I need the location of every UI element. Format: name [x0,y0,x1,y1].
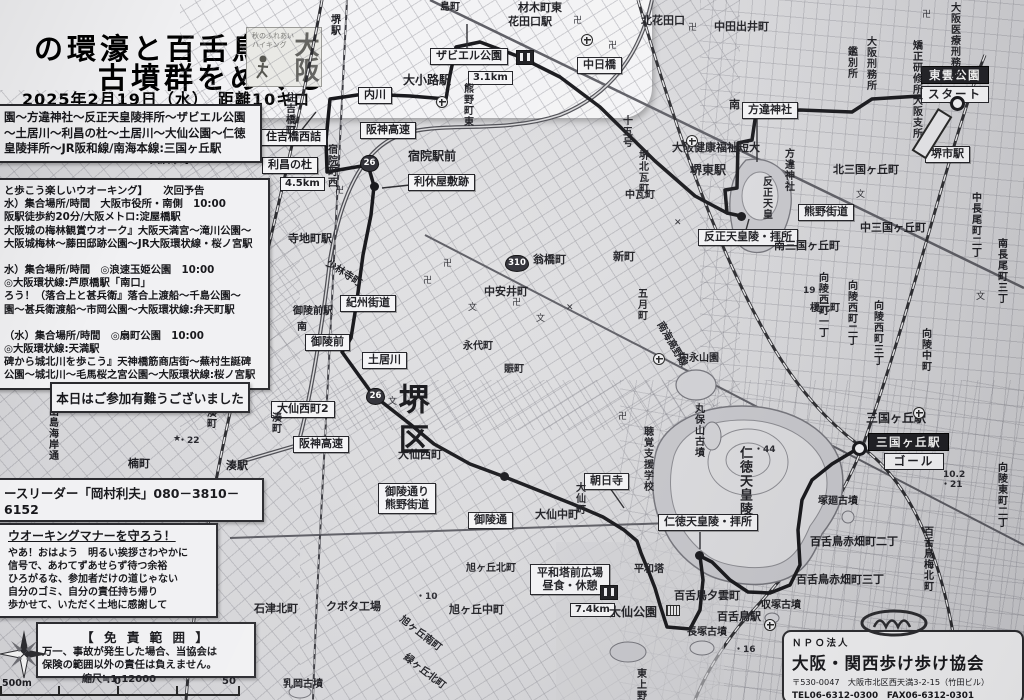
map-label: 住吉橋西詰 [260,129,327,146]
hiker-icon [253,54,275,80]
map-label: 東上野芝町 [634,668,646,700]
scale-bar: 縮尺≒1:12000 500m 0 50 [0,668,246,700]
scale-tick [176,686,178,695]
map-label: 仁徳天皇陵 [736,446,751,516]
map-label: 中瓦町 [625,190,655,202]
map-symbol: 卍 [922,10,931,20]
course-description-box: 園～方違神社～反正天皇陵拝所～ザビエル公園 ～土居川～利昌の杜～土居川～大仙公園… [0,104,262,163]
map-label: 土居川 [362,352,407,369]
map-label: 十五号 [620,115,632,148]
walking-manner-box: ウオーキングマナーを守ろう！ やあ！おはよう 明るい挨拶さわやかに 信号で、あわ… [0,523,218,618]
map-label: 長塚古墳 [687,627,727,639]
restroom-icon [600,585,618,600]
map-label: 石津北町 [254,603,298,616]
map-label: 中長尾町二丁 [969,192,981,258]
map-label: 方違神社 [742,102,798,119]
next-walk-announcement-box: と歩こう楽しいウオーキング】 次回予告 水）集合場所/時間 大阪市役所・南側 1… [0,178,270,390]
map-label: 紀州街道 [340,295,396,312]
manner-lines: やあ！おはよう 明るい挨拶さわやかに 信号で、あわてずあせらず待つ余裕 ひろがる… [8,547,212,612]
map-label: 乳岡古墳 [283,679,323,691]
map-symbol: 卍 [618,412,627,422]
museum-icon [666,605,680,616]
map-label: 榎元町 [810,303,840,315]
map-symbol: 卍 [443,259,452,269]
chinooka-tomb [289,686,311,698]
map-label: 中田出井町 [714,21,769,34]
map-label: 大仙公園 [609,606,657,620]
map-symbol: ✕ [674,218,682,228]
map-label: 大仙町 [573,482,585,515]
map-label: スタート [921,86,989,103]
spot-height: ・16 [734,645,756,655]
map-label: 阪神高速 [360,122,416,139]
map-label: 大仙西町 [398,449,442,462]
map-label: 南海高野線 [654,320,689,369]
map-label: 北三国ヶ丘町 [833,164,899,177]
map-symbol: 文 [536,314,545,324]
manner-title: ウオーキングマナーを守ろう！ [8,529,212,545]
thanks-box: 本日はご参加有難うございました [50,382,250,413]
map-label: 緑ヶ丘北町 [401,652,447,692]
map-symbol: 文 [468,303,477,313]
spot-height: ・44 [754,445,776,455]
map-label: 御陵前駅 [293,306,333,318]
map-label: 向陵東町二丁 [995,462,1007,528]
map-label: 収塚古墳 [761,600,801,612]
map-label: 大阪健康福祉短大 [672,142,760,155]
map-label: 大阪医療刑務所 [948,2,960,79]
map-label: 平和塔 [634,564,664,576]
map-symbol: ✕ [566,303,574,313]
map-label: 利休屋敷跡 [408,174,475,191]
map-label: 聴覚支援学校 [641,426,653,492]
map-symbol: 卍 [423,276,432,286]
nintoku-tomb [653,406,843,584]
map-label: 宿院町西 [325,144,337,188]
start-goal-marker [852,441,867,456]
map-label: 御陵前 [305,334,350,351]
map-label: 朝日寺 [584,473,629,490]
map-label: 出島海岸通 [46,406,58,461]
railway-jr-hanwa [695,55,985,700]
scale-tick [117,686,119,695]
spot-height: ・10 [416,592,438,602]
npo-address: 〒530-0047 大阪市北区西天満3-2-15（竹田ビル） [792,676,1014,688]
npo-tel-fax: TEL06-6312-0300 FAX06-6312-0301 [792,688,1014,700]
map-label: 平和塔前広場 昼食・休憩 [530,564,610,595]
nagatsuka-tomb [690,641,714,655]
road-310 [425,235,1024,545]
map-label: 堺市駅 [925,146,970,163]
scale-line [0,694,240,696]
npo-association-box: ＮＰＯ法人 大阪・関西歩け歩け協会 〒530-0047 大阪市北区西天満3-2-… [782,630,1024,700]
map-symbol: 卍 [512,298,521,308]
road-goryo-dori [230,522,700,538]
map-label: 阪神高速 [293,436,349,453]
map-label: 向陵西町三丁 [871,300,883,366]
spot-height: 10.2 [943,470,965,480]
street-grid-patch [700,0,1024,700]
map-label: ゴール [884,453,944,470]
npo-logo-icon [858,608,930,638]
map-label: 向陵西町二丁 [845,280,857,346]
scale-right-label: 50 [222,676,236,687]
map-label: 旭ヶ丘中町 [449,604,504,617]
map-symbol: 文 [976,292,985,302]
map-label: 百舌鳥夕雲町 [674,590,740,603]
nagayama-tomb [676,370,716,400]
walking-route [326,42,958,629]
map-label: 中永山園 [679,353,719,365]
map-sheet: ザビエル公園3.1km中日橋東雲公園スタート堺市駅方違神社反正天皇陵・拝所熊野街… [0,0,1024,700]
map-label: 中三国ヶ丘町 [860,222,926,235]
route-number-shield: 26 [366,388,385,405]
map-label: 南 [297,322,307,334]
map-label: 大阪刑務所 [864,36,876,91]
map-label: 湊駅 [226,460,248,473]
map-label: 鑑別所 [845,46,857,79]
map-label: 中安井町 [484,286,528,299]
station-icon [913,407,925,419]
scale-left-label: 500m [2,678,32,689]
map-label: 東雲公園 [921,66,989,84]
map-label: 百舌鳥赤畑町二丁 [810,536,898,549]
map-label: 大仙中町 [535,509,579,522]
map-label: 百舌鳥赤畑町三丁 [796,574,884,587]
route-number-shield: 310 [505,255,529,272]
map-label: 向陵西町一丁 [816,272,828,338]
route-point-marker [500,472,509,481]
map-label: 7.4km [570,603,615,617]
ward-name-label: 堺区 [392,383,428,463]
map-symbol: ★ [173,434,181,444]
map-label: 矯正研修所大阪支所 [910,40,922,139]
npo-name: 大阪・関西歩け歩け協会 [792,650,1014,674]
map-label: 永代町 [463,341,493,353]
map-label: 旭ヶ丘北町 [466,563,516,575]
map-label: 三国ヶ丘駅 [868,433,949,451]
map-symbol: 卍 [688,23,697,33]
disclaimer-title: 【 免 責 範 囲 】 [42,627,250,646]
map-label: 丸保山古墳 [692,403,704,458]
course-leader-strip: ースリーダー「岡村利夫」080－3810－6152 [0,478,264,522]
map-label: 御陵通 [468,512,513,529]
station-icon [653,353,665,365]
map-label: 南三国ヶ丘町 [774,240,840,253]
map-label: 湊町 [269,412,281,434]
map-label: 賑町 [504,364,524,376]
station-icon [764,619,776,631]
map-symbol: 卍 [335,186,344,196]
maruhoyama-tomb [703,422,721,450]
map-label: 百舌鳥駅 [717,611,761,624]
title-panel: の環濠と百舌鳥 古墳群をめぐる 2025年2月19日（水） 距離10キロ 秋のふ… [0,0,652,118]
spot-height: ・21 [941,480,963,490]
map-label: 五月町 [635,288,647,321]
map-label: 三国ヶ丘駅 [866,412,926,426]
station-icon [686,135,698,147]
map-label: 少林寺町 [324,258,364,289]
hanzei-tomb [730,159,791,252]
route-point-marker [370,182,379,191]
route-point-marker [695,551,704,560]
map-label: 4.5km [280,177,325,191]
logo-osaka-text: 大阪 [293,32,318,82]
map-label: 大仙西町2 [271,401,335,418]
map-label: 翁橋町 [533,254,566,267]
park-pond [610,642,646,662]
osamezuka-tomb [765,613,779,623]
scale-tick [0,686,2,695]
map-label: 塚廻古墳 [818,496,858,508]
map-label: 向陵中町 [919,328,931,372]
tsukamawari-tomb [842,511,854,523]
map-label: 新町 [613,251,635,264]
map-label: 南 [729,99,740,112]
railway-nankai-koya [638,0,962,700]
map-label: 仁徳天皇陵・拝所 [658,514,758,531]
osaka-hiking-logo: 秋のふれあい ハイキング 大阪 [246,27,322,87]
map-label: 堺北瓦町 [636,150,648,194]
map-symbol: 文 [388,397,397,407]
map-label: 反正天皇 [760,176,772,220]
spot-height: 19・ [803,286,825,296]
map-label: 楠町 [128,458,150,471]
map-label: 南長尾町三丁 [995,238,1007,304]
map-label: 百舌鳥梅北町 [921,526,933,592]
street-grid-patch [300,380,720,700]
map-label: 御陵通り 熊野街道 [378,483,436,514]
daisen-park-area [556,542,724,700]
route-point-marker [737,212,746,221]
map-label: 寺地町駅 [288,233,332,246]
map-label: 方違神社 [782,148,794,192]
map-label: 反正天皇陵・拝所 [698,229,798,246]
map-symbol: 文 [856,190,865,200]
scale-tick [58,686,60,695]
map-label: クボタ工場 [326,601,381,614]
map-label: 熊野街道 [798,204,854,221]
map-label: 宿院駅前 [408,150,456,164]
route-number-shield: 26 [360,155,379,172]
spot-height: ・22 [178,436,200,446]
start-goal-marker [950,96,965,111]
map-label: 堺東駅 [690,164,726,178]
logo-small-text: 秋のふれあい ハイキング [252,32,294,50]
scale-tick [238,686,240,695]
station-building [912,108,953,159]
map-label: 利昌の杜 [262,157,318,174]
map-label: 旭ヶ丘南町 [397,614,443,654]
